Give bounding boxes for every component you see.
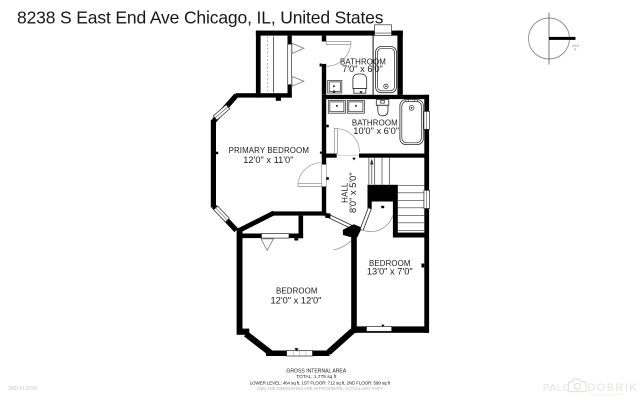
- svg-text:12'0" x 12'0": 12'0" x 12'0": [271, 295, 322, 305]
- svg-text:BEDROOM: BEDROOM: [276, 287, 318, 296]
- svg-text:2ND FLOOR: 2ND FLOOR: [8, 386, 37, 392]
- svg-text:8'0" x 5'0": 8'0" x 5'0": [348, 172, 358, 213]
- svg-text:PHOTOGRAPHY: PHOTOGRAPHY: [588, 392, 624, 397]
- svg-text:7'0" x 6'0": 7'0" x 6'0": [342, 64, 383, 74]
- svg-text:8238 S East End Ave Chicago, I: 8238 S East End Ave Chicago, IL, United …: [17, 8, 384, 28]
- svg-text:PRIMARY BEDROOM: PRIMARY BEDROOM: [229, 146, 309, 155]
- svg-text:SIZE AND DIMENSIONS ARE APPROX: SIZE AND DIMENSIONS ARE APPROXIMATE, ACT…: [257, 386, 383, 391]
- svg-text:GROSS INTERNAL AREA: GROSS INTERNAL AREA: [286, 369, 346, 375]
- svg-text:TOTAL: 1,775 sq ft: TOTAL: 1,775 sq ft: [296, 374, 337, 380]
- svg-text:10'0" x 6'0": 10'0" x 6'0": [353, 126, 399, 136]
- svg-text:LOWER LEVEL: 464 sq ft, 1ST FL: LOWER LEVEL: 464 sq ft, 1ST FLOOR: 712 s…: [250, 381, 391, 386]
- svg-text:N: N: [574, 47, 577, 51]
- svg-text:13'0" x 7'0": 13'0" x 7'0": [367, 267, 413, 277]
- svg-text:12'0" x 11'0": 12'0" x 11'0": [243, 155, 293, 165]
- svg-text:PALO: PALO: [543, 383, 571, 394]
